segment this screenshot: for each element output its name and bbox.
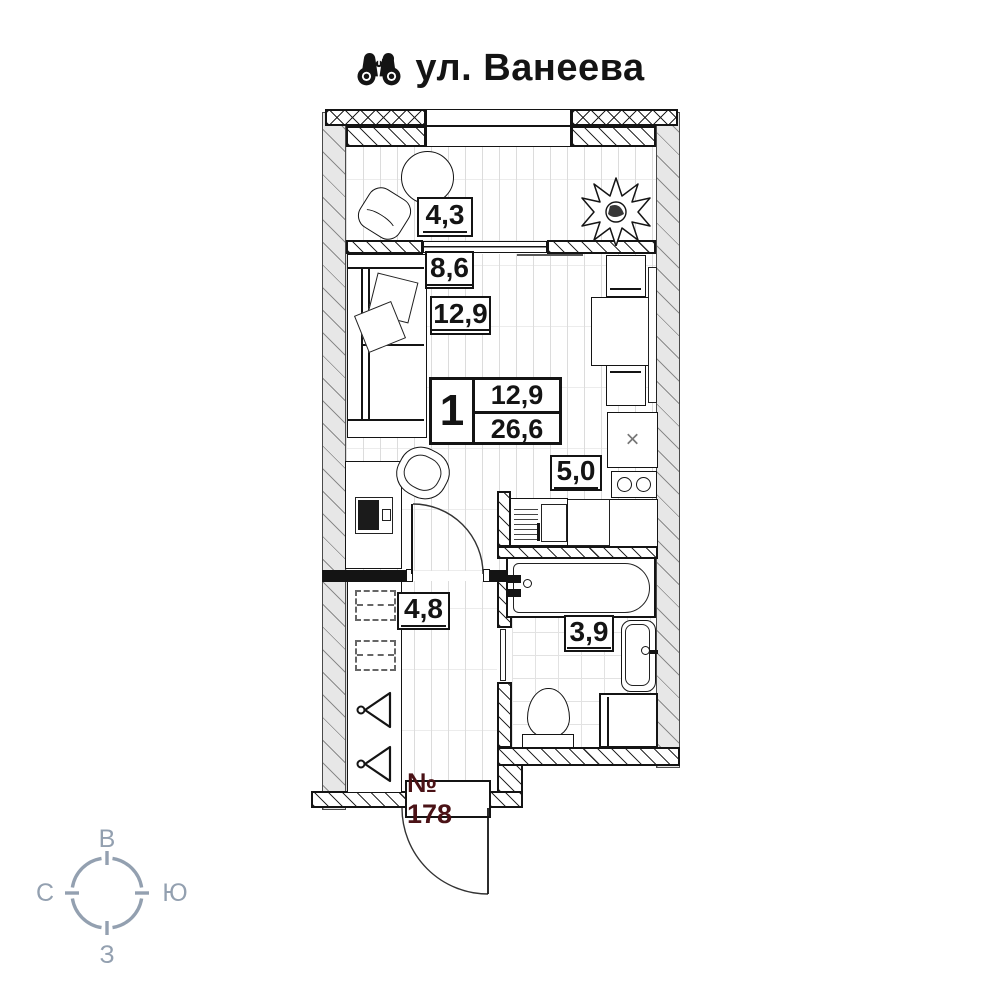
area-label-zone-secondary: 8,6 (425, 251, 474, 289)
kitchen-counter (607, 499, 658, 547)
bathroom-sink (621, 620, 656, 692)
entry-wall-right (488, 791, 523, 808)
bath-tap-2 (508, 589, 521, 597)
kitchen-counter-run (566, 499, 610, 546)
bathtub (506, 557, 656, 618)
hanger-icon-1 (354, 686, 396, 734)
top-wall-hatch-right (571, 126, 656, 147)
floor-plan-page: { "header": { "title": "ул. Ванеева", "i… (0, 0, 1000, 1000)
shelf-line (357, 654, 394, 656)
shelf-line (357, 604, 394, 606)
sink-basin (541, 504, 567, 542)
laptop (355, 497, 393, 534)
compass-rose (62, 848, 152, 938)
apartment-number-box: № 178 (405, 780, 491, 818)
bathroom-sink-bowl (625, 624, 650, 686)
bathtub-inner (513, 563, 650, 613)
sofa-armrest-bottom (348, 419, 424, 421)
wardrobe-shelf-1 (355, 590, 396, 621)
street-name: ул. Ванеева (415, 47, 644, 90)
sink-tap-knob (641, 646, 650, 655)
laptop-trackpad (382, 509, 391, 521)
chair-seat-line (610, 371, 641, 373)
fridge-mark: × (625, 426, 639, 454)
bath-tap-1 (508, 575, 521, 583)
bath-tap-knob (523, 579, 532, 588)
balcony-window-upper (426, 109, 571, 126)
plant-icon (580, 176, 652, 246)
dining-chair-top (606, 255, 646, 297)
wall-connector (497, 764, 523, 793)
info-living-area: 12,9 (475, 380, 559, 414)
info-rooms-count: 1 (432, 380, 475, 442)
stove (611, 471, 657, 498)
balcony-window-lower (426, 126, 571, 147)
bathroom-bottom-wall (497, 747, 680, 766)
compass-west-label: З (92, 942, 122, 968)
door-jamb-right (483, 569, 490, 582)
area-label-kitchen: 5,0 (550, 455, 602, 491)
office-chair-seat (398, 449, 447, 496)
wardrobe-shelf-2 (355, 640, 396, 671)
fridge: × (607, 412, 658, 468)
sink-tap-stub (650, 650, 658, 654)
compass-east-label: В (92, 826, 122, 852)
apartment-info-box: 1 12,9 26,6 (429, 377, 562, 445)
toilet-cistern (522, 734, 574, 748)
info-total-area: 26,6 (475, 414, 559, 445)
kitchen-stub-wall (497, 491, 511, 547)
outer-wall-left (322, 112, 346, 810)
dining-chair-bottom (606, 365, 646, 406)
entry-wall-left (311, 791, 410, 808)
sink-drainer (514, 506, 538, 540)
sofa-armrest-top (348, 267, 424, 269)
outer-wall-right (656, 112, 680, 768)
window-sill-right (517, 254, 583, 256)
compass-north-label: С (30, 880, 60, 906)
washing-machine-door-line (607, 697, 609, 746)
dining-table (591, 297, 653, 366)
wall-radiator-panel (648, 267, 657, 403)
compass-south-label: Ю (160, 880, 190, 906)
apartment-number: № 178 (407, 768, 489, 830)
binoculars-icon (355, 50, 403, 86)
washing-machine (599, 693, 658, 748)
laptop-keyboard (358, 500, 379, 530)
wardrobe (347, 581, 402, 793)
area-label-balcony: 4,3 (417, 197, 473, 237)
burner-right (636, 477, 651, 492)
top-wall-hatch-left (346, 126, 426, 147)
kitchen-sink-unit (509, 498, 568, 546)
burner-left (617, 477, 632, 492)
area-label-living: 12,9 (430, 296, 491, 335)
area-label-hallway: 4,8 (397, 592, 450, 630)
sink-tap (537, 523, 540, 541)
desk (345, 461, 402, 569)
chair-seat-line (610, 288, 641, 290)
sofa-backrest-line-1 (361, 267, 363, 421)
hall-bath-wall-lower (497, 682, 512, 748)
area-label-bathroom: 3,9 (564, 615, 614, 652)
street-title: ул. Ванеева (280, 42, 720, 94)
sofa (347, 254, 427, 438)
door-jamb-left (406, 569, 413, 582)
balcony-wall-left (346, 240, 423, 254)
bathroom-door-leaf (500, 629, 506, 681)
hanger-icon-2 (354, 740, 396, 788)
top-wall-crosshatch-right (571, 109, 678, 126)
top-wall-crosshatch-left (325, 109, 426, 126)
